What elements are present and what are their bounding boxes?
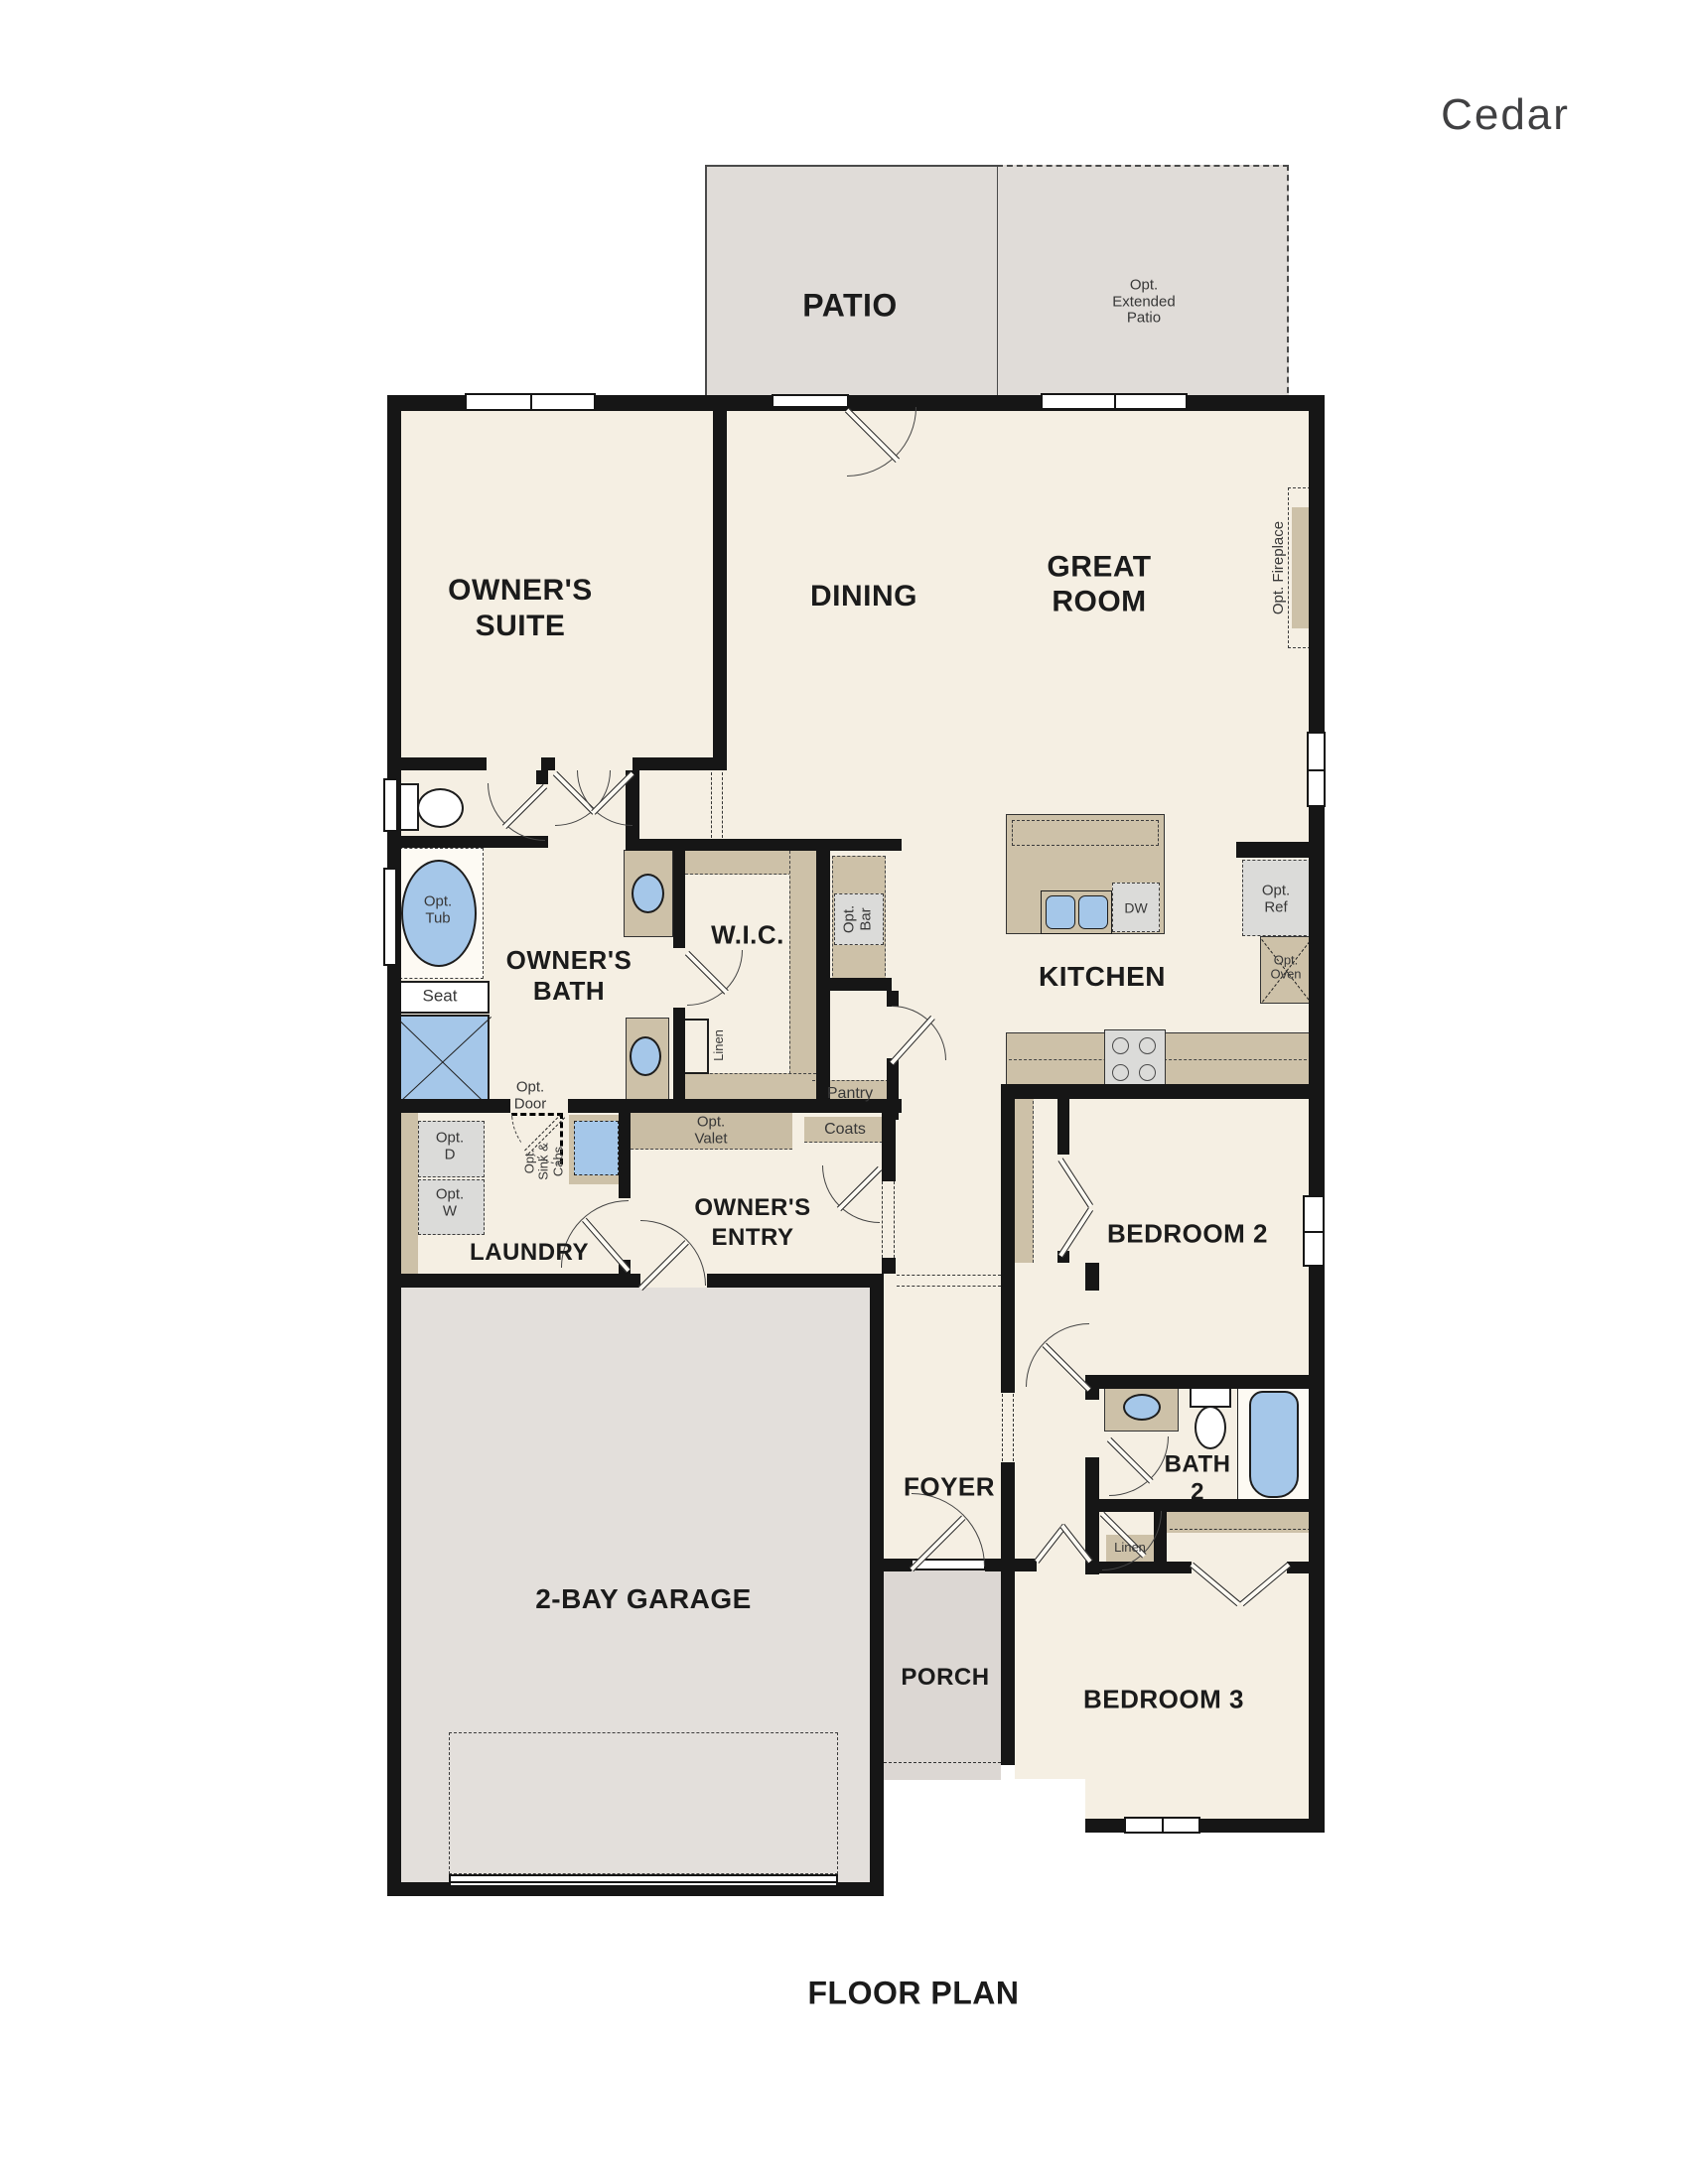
window	[772, 394, 849, 408]
plan-title: Cedar	[1441, 90, 1570, 140]
window	[383, 778, 398, 832]
wall	[1085, 1819, 1325, 1833]
garage-label: 2-BAY GARAGE	[535, 1583, 752, 1615]
floor-plan-sheet: Cedar	[0, 0, 1688, 2184]
wall	[387, 836, 548, 848]
great-room-label: GREATROOM	[1047, 551, 1151, 619]
wic-shelf-bottom	[685, 1073, 816, 1099]
owner-sink	[630, 1036, 661, 1076]
wall	[882, 1099, 896, 1181]
bath2-sink	[1123, 1394, 1161, 1421]
opt-fireplace-label: Opt. Fireplace	[1271, 521, 1288, 614]
wall	[387, 757, 487, 770]
opt-dryer-label: Opt.D	[436, 1131, 464, 1163]
wall	[673, 1008, 685, 1099]
opt-valet-label: Opt.Valet	[694, 1115, 727, 1148]
garage-door-panel	[449, 1874, 838, 1887]
extended-patio-label: Opt.ExtendedPatio	[1112, 277, 1175, 327]
wall	[887, 991, 899, 1007]
cased-opening	[1002, 1394, 1014, 1461]
wall	[1057, 1087, 1069, 1155]
porch-label: PORCH	[901, 1664, 989, 1692]
wall	[541, 757, 555, 770]
laundry-sink	[574, 1121, 619, 1175]
opt-tub-label: Opt.Tub	[424, 894, 452, 927]
bedroom2-label: BEDROOM 2	[1107, 1219, 1268, 1250]
opt-door-label: Opt.Door	[514, 1080, 547, 1113]
wall	[1085, 1375, 1325, 1389]
cased-opening	[711, 772, 723, 838]
cased-opening	[882, 1181, 895, 1258]
bedroom3-label: BEDROOM 3	[1083, 1685, 1244, 1715]
sheet-caption: FLOOR PLAN	[808, 1976, 1020, 2012]
wall	[387, 1099, 510, 1113]
window	[1303, 1195, 1325, 1267]
owner-toilet-bowl	[417, 788, 464, 828]
bedroom2-closet-shelf	[1012, 1086, 1034, 1263]
seat-label: Seat	[423, 988, 458, 1007]
owners-entry-label: OWNER'SENTRY	[694, 1193, 810, 1253]
porch-edge-line	[884, 1762, 1001, 1763]
wall	[626, 839, 902, 851]
wall	[1309, 395, 1325, 1833]
pantry-label: Pantry	[827, 1085, 873, 1103]
opt-sink-cabs-label: Opt.Sink &Cabs	[523, 1143, 566, 1180]
window	[1124, 1817, 1200, 1834]
bedroom3-vestibule-floor	[1015, 1570, 1085, 1779]
burner-icon	[1139, 1064, 1156, 1081]
wall	[673, 839, 685, 948]
wall	[619, 1113, 631, 1198]
wall	[707, 1274, 884, 1288]
wall	[536, 770, 548, 784]
dishwasher-label: DW	[1124, 900, 1147, 915]
burner-icon	[1112, 1064, 1129, 1081]
burner-icon	[1112, 1037, 1129, 1054]
bath2-toilet-tank	[1190, 1386, 1231, 1408]
bath2-tub	[1249, 1391, 1299, 1498]
wic-shelf-right	[789, 851, 816, 1099]
closet-rod-line	[1170, 1529, 1321, 1530]
bath2-linen-label: Linen	[1114, 1541, 1146, 1555]
opt-bar-label: Opt.Bar	[842, 905, 875, 933]
wall	[713, 395, 727, 770]
wall	[816, 839, 830, 1099]
wall	[1001, 1084, 1015, 1393]
wall	[1085, 1457, 1099, 1523]
wall	[830, 978, 892, 991]
opt-oven-label: Opt.Oven	[1270, 954, 1301, 983]
owners-suite-label: OWNER'SSUITE	[448, 573, 593, 644]
foyer-label: FOYER	[904, 1472, 995, 1503]
opt-ref-label: Opt.Ref	[1262, 884, 1290, 916]
wall	[1001, 1084, 1325, 1099]
island-opt-extension	[1012, 820, 1159, 846]
wall	[882, 1258, 896, 1274]
opt-washer-label: Opt.W	[436, 1187, 464, 1220]
wall	[1001, 1462, 1015, 1562]
cased-opening	[897, 1275, 1001, 1287]
wall	[1236, 842, 1325, 858]
wall	[870, 1274, 884, 1896]
wall	[387, 395, 401, 1896]
window	[383, 868, 397, 966]
patio-area	[705, 165, 997, 403]
wall	[882, 1559, 912, 1571]
coats-label: Coats	[824, 1121, 866, 1139]
wic-linen-label: Linen	[712, 1029, 726, 1061]
wall	[1287, 1562, 1325, 1573]
wall	[1085, 1263, 1099, 1291]
garage-door-outline	[449, 1732, 838, 1874]
bath2-toilet-bowl	[1195, 1406, 1226, 1449]
kitchen-label: KITCHEN	[1039, 961, 1166, 993]
wall	[1001, 1559, 1037, 1571]
opt-fireplace-box	[1292, 507, 1310, 628]
wall	[633, 757, 727, 770]
wall	[1001, 1570, 1015, 1765]
wall	[387, 1274, 640, 1288]
dining-label: DINING	[810, 580, 917, 614]
kitchen-sink-basin	[1078, 895, 1108, 929]
laundry-counter-strip	[401, 1113, 418, 1276]
wic-label: W.I.C.	[711, 920, 784, 951]
kitchen-sink-basin	[1046, 895, 1075, 929]
patio-label: PATIO	[802, 288, 898, 325]
burner-icon	[1139, 1037, 1156, 1054]
bath2-label: BATH2	[1165, 1450, 1231, 1505]
window	[1307, 732, 1326, 807]
owner-sink	[632, 874, 664, 913]
owners-bath-label: OWNER'SBATH	[506, 945, 633, 1007]
window	[1041, 393, 1188, 410]
laundry-label: LAUNDRY	[470, 1239, 589, 1267]
window	[465, 393, 596, 411]
